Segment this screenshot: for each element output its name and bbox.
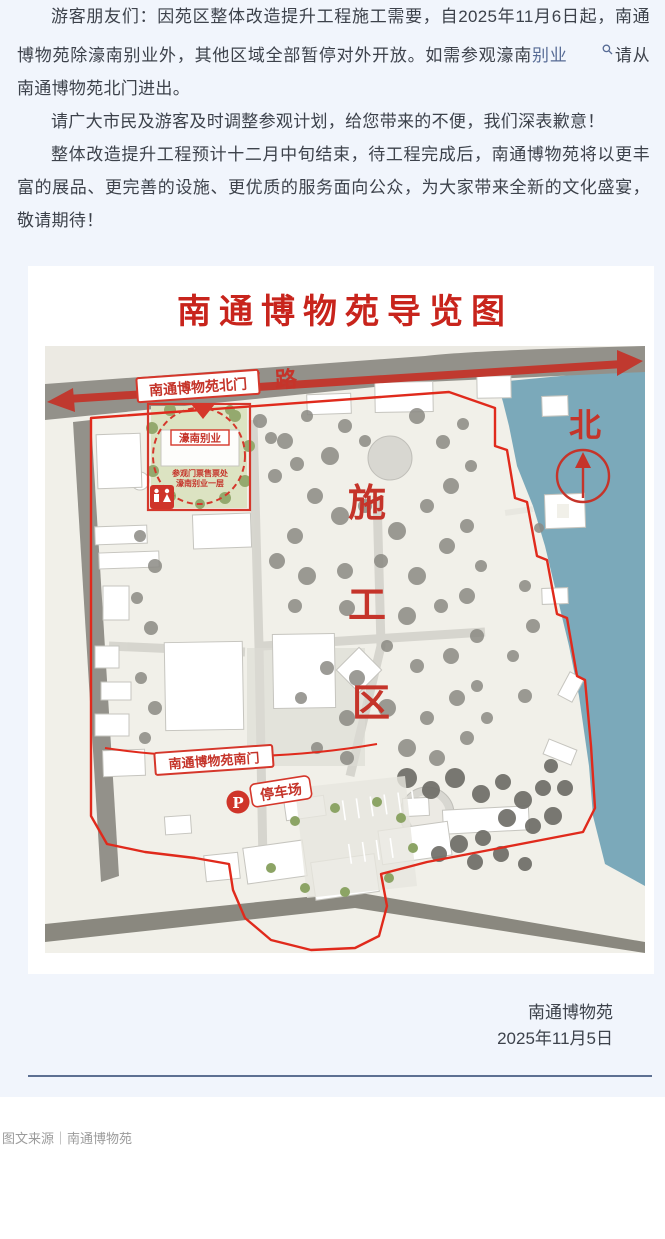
parking-icon: P [227, 791, 250, 814]
signature-block: 南通博物苑 2025年11月5日 [0, 1000, 665, 1052]
signature-org: 南通博物苑 [0, 1000, 613, 1026]
map-figure[interactable]: 南通博物苑导览图 [28, 266, 654, 974]
construction-char-3: 区 [352, 680, 390, 725]
construction-zone-label: 施 工 区 [348, 480, 390, 725]
construction-char-2: 工 [348, 582, 386, 627]
construction-char-1: 施 [348, 480, 386, 525]
haonan-villa-link[interactable]: 别业 [532, 46, 568, 65]
article-text: 游客朋友们：因苑区整体改造提升工程施工需要，自2025年11月6日起，南通博物苑… [0, 0, 665, 237]
link-magnifier-icon[interactable] [568, 33, 613, 66]
map-title: 南通博物苑导览图 [45, 290, 645, 334]
north-pond [368, 436, 412, 480]
article-body: 游客朋友们：因苑区整体改造提升工程施工需要，自2025年11月6日起，南通博物苑… [0, 0, 665, 1097]
building-courtyard-notch [557, 504, 569, 518]
paragraph-notice: 游客朋友们：因苑区整体改造提升工程施工需要，自2025年11月6日起，南通博物苑… [17, 0, 650, 105]
notice-text: 物苑除濠南别业外，其他区域全部暂停对外开放。如需参观濠南 [35, 46, 532, 65]
parking-symbol: P [232, 794, 243, 812]
museum-guide-map: 濠南路 南通博物苑北门 濠南别业 参观门票售票处 濠南别业一层 [45, 346, 645, 953]
paragraph-outlook: 整体改造提升工程预计十二月中旬结束，待工程完成后，南通博物苑将以更丰富的展品、更… [17, 138, 650, 237]
ticket-office-line2: 濠南别业一层 [176, 478, 224, 488]
paragraph-apology: 请广大市民及游客及时调整参观计划，给您带来的不便，我们深表歉意！ [17, 105, 650, 138]
restroom-icon [150, 485, 174, 509]
divider-line [28, 1075, 652, 1077]
ticket-office-line1: 参观门票售票处 [171, 468, 229, 478]
compass-label: 北 [569, 406, 601, 444]
signature-date: 2025年11月5日 [0, 1026, 613, 1052]
villa-label: 濠南别业 [179, 432, 221, 445]
source-footer: 图文来源｜南通博物苑 [0, 1097, 665, 1208]
